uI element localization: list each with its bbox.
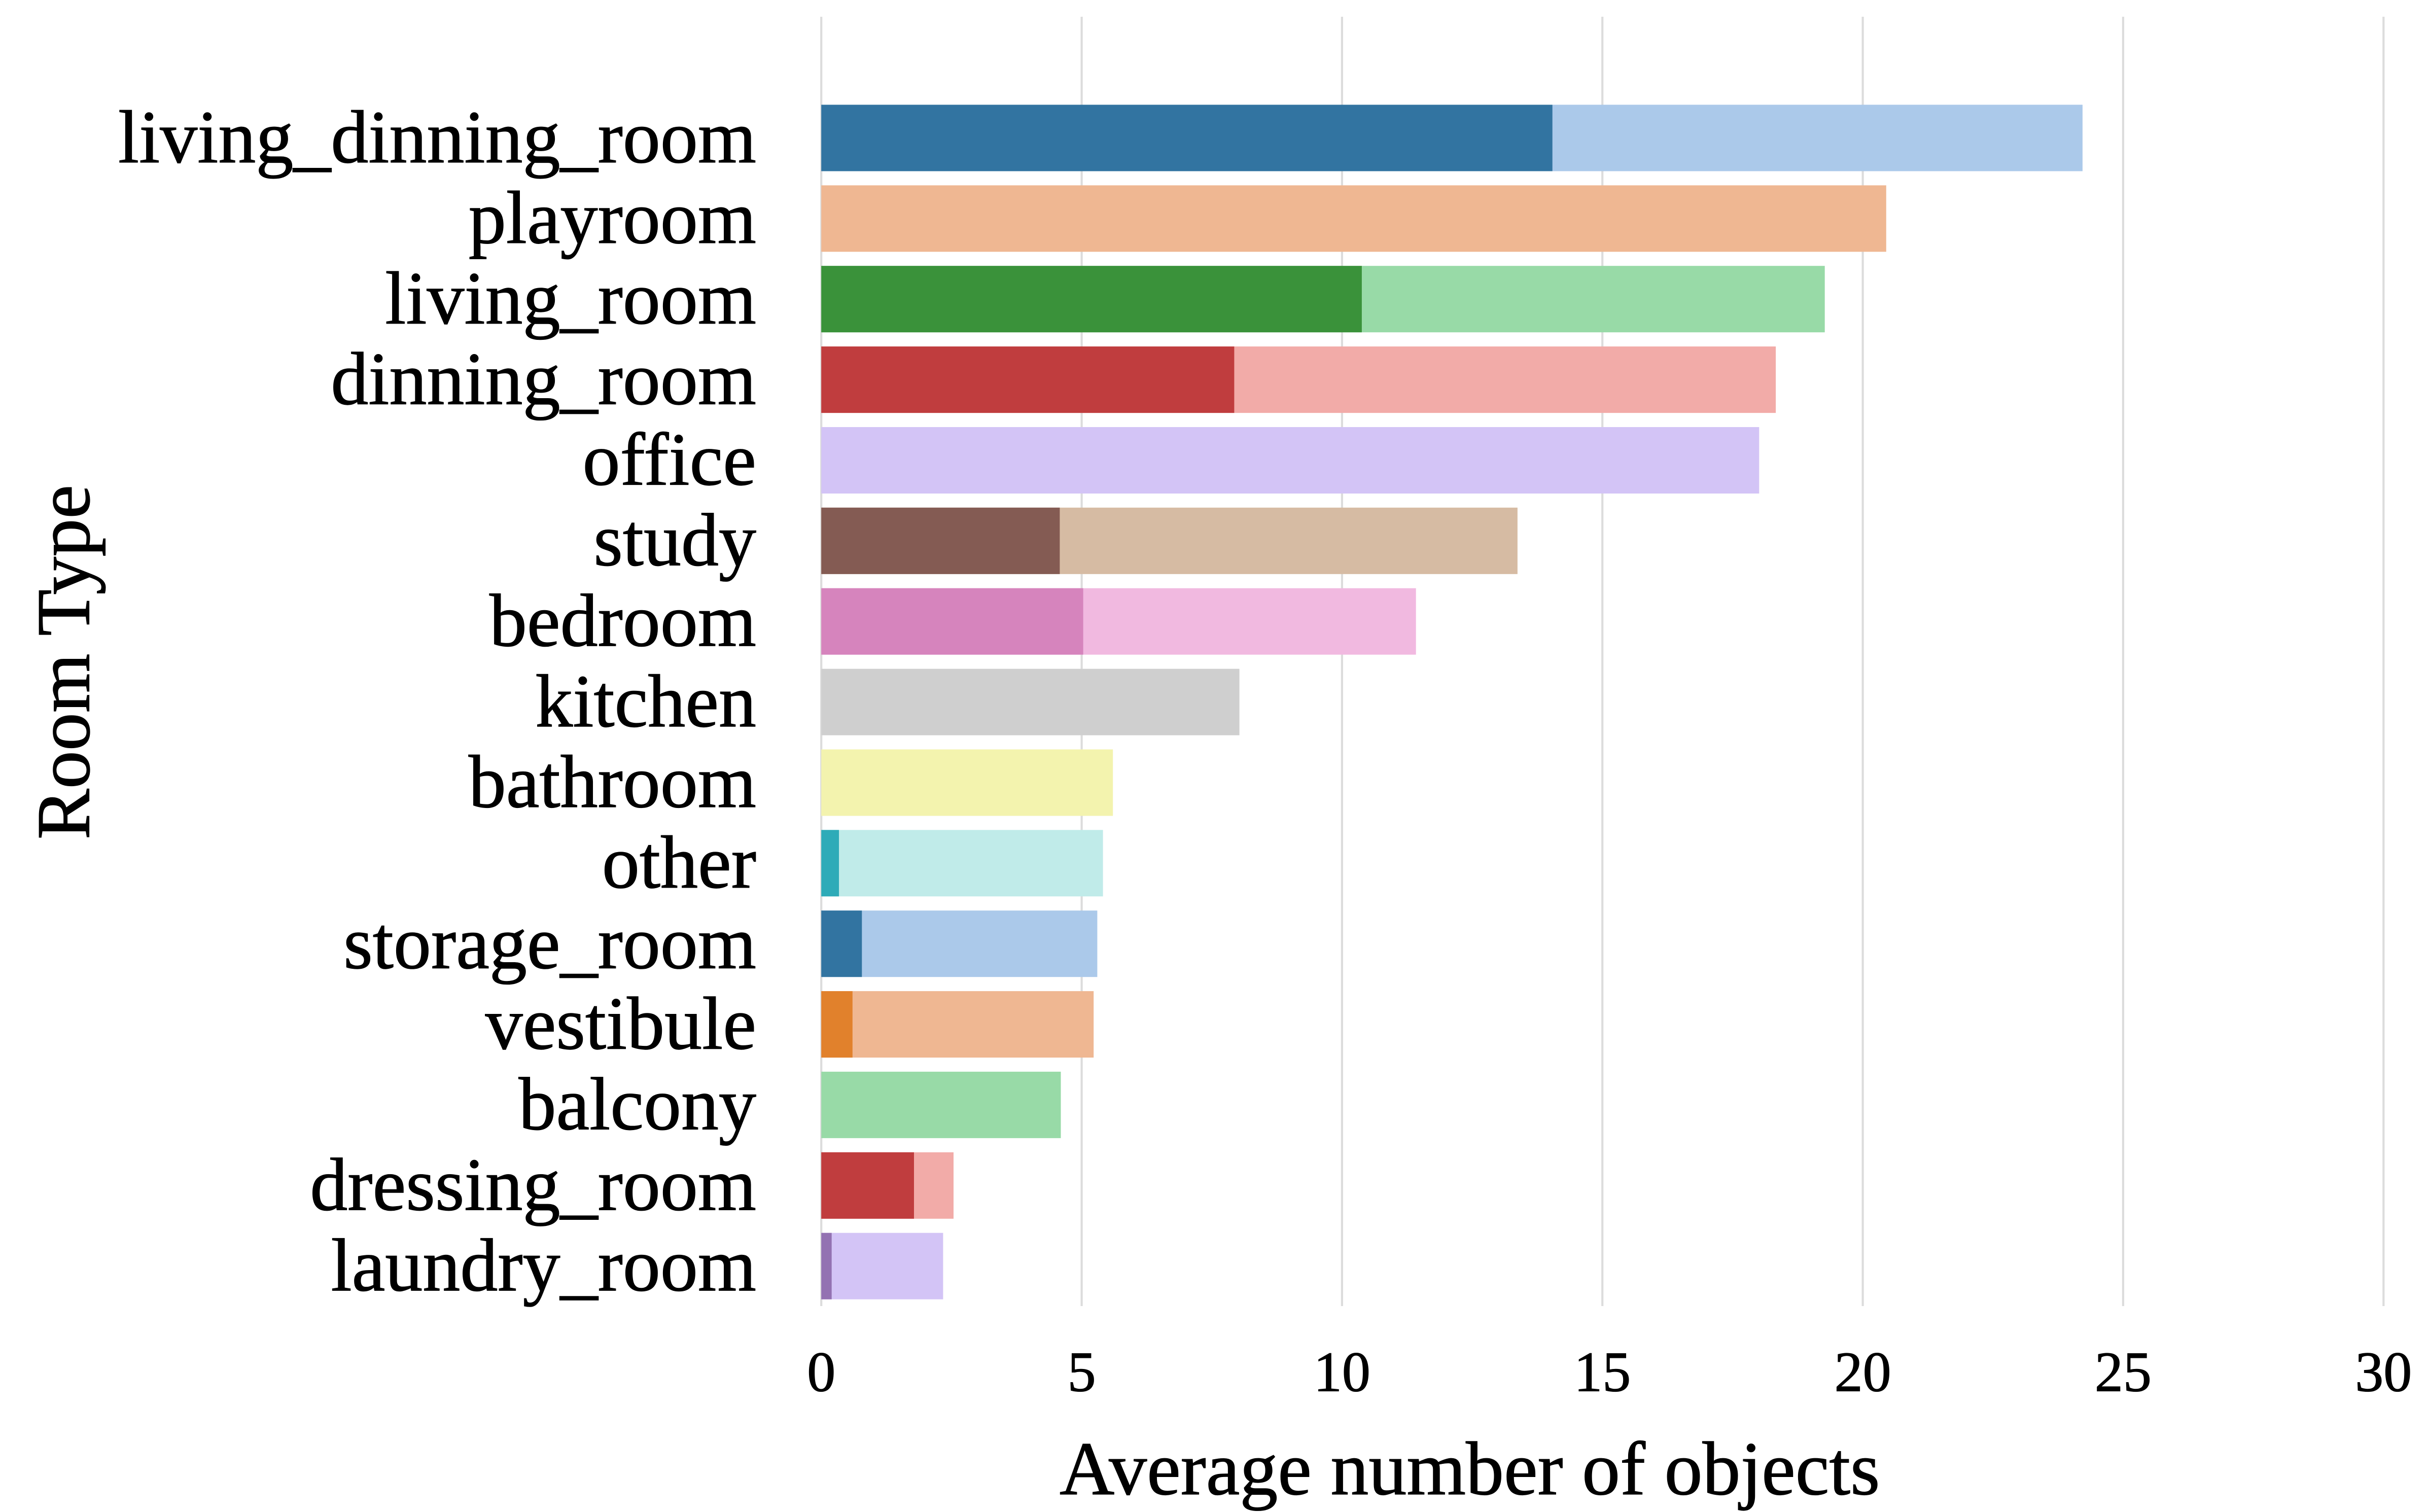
svg-text:bedroom: bedroom (489, 579, 756, 662)
svg-text:vestibule: vestibule (485, 982, 756, 1066)
svg-text:25: 25 (2095, 1341, 2152, 1404)
svg-text:dressing_room: dressing_room (310, 1143, 756, 1226)
svg-text:playroom: playroom (469, 177, 756, 260)
svg-text:15: 15 (1574, 1341, 1631, 1404)
svg-text:20: 20 (1835, 1341, 1891, 1404)
svg-text:0: 0 (807, 1341, 835, 1404)
svg-text:dinning_room: dinning_room (331, 338, 756, 421)
svg-text:10: 10 (1314, 1341, 1370, 1404)
svg-text:storage_room: storage_room (343, 902, 756, 985)
svg-text:other: other (602, 821, 756, 904)
svg-text:bathroom: bathroom (469, 741, 756, 824)
svg-text:Average number of objects: Average number of objects (1060, 1427, 1880, 1511)
svg-text:30: 30 (2355, 1341, 2412, 1404)
svg-text:Room Type: Room Type (22, 485, 106, 839)
svg-text:balcony: balcony (519, 1063, 757, 1146)
svg-text:living_dinning_room: living_dinning_room (118, 96, 756, 179)
svg-text:office: office (583, 418, 756, 502)
svg-text:laundry_room: laundry_room (331, 1224, 757, 1307)
svg-text:kitchen: kitchen (535, 660, 756, 743)
svg-text:study: study (593, 499, 756, 582)
svg-text:living_room: living_room (385, 257, 756, 340)
svg-text:5: 5 (1068, 1341, 1096, 1404)
